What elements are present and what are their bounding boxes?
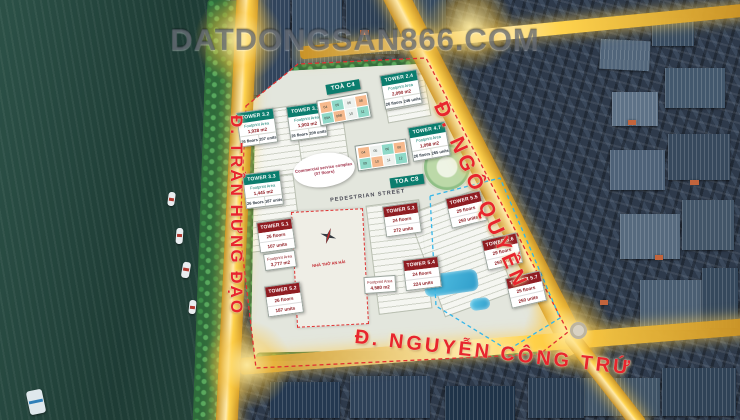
unit-cell: 10 xyxy=(345,107,358,119)
floors: 26 floors xyxy=(385,97,404,109)
roof xyxy=(655,255,663,260)
tower-card-3-3: TOWER 3.3 Footprint Area 1,445 m2 26 flo… xyxy=(242,170,284,209)
roundabout xyxy=(570,322,587,339)
units: 209 units xyxy=(308,126,328,137)
floors: 26 floors xyxy=(413,149,432,161)
building xyxy=(599,39,651,72)
aerial-masterplan-map: NHÀ THỜ AN HẢI PEDESTRIAN STREET TOWER 3… xyxy=(0,0,740,420)
building xyxy=(620,214,680,259)
building xyxy=(668,134,730,180)
swimming-pool xyxy=(469,297,490,312)
tower-card-5-1: TOWER 5.1 26 floors 107 units xyxy=(256,218,296,254)
units: 187 units xyxy=(263,195,282,206)
tower-card-2-4: TOWER 2.4 Footprint Area 2,090 m2 26 flo… xyxy=(379,69,423,110)
footprint-box-5-4: Footprint Area 4,580 m2 xyxy=(363,275,396,294)
unit-cell: 08 xyxy=(393,141,405,152)
unit-cell: 09A xyxy=(321,112,334,124)
building xyxy=(665,68,725,108)
unit-cell: 04 xyxy=(319,101,332,113)
units: 246 units xyxy=(402,94,422,106)
floors: 26 floors xyxy=(290,129,309,140)
building xyxy=(350,376,430,418)
watermark-text: DATDONGSAN866.COM xyxy=(140,22,570,58)
boat xyxy=(175,228,183,244)
floors: 26 floors xyxy=(246,197,264,208)
building xyxy=(445,386,515,420)
compass-rose-icon xyxy=(317,225,339,247)
building xyxy=(270,382,340,418)
unit-cell: 11 xyxy=(356,105,369,117)
unit-cell: 06 xyxy=(381,143,393,154)
roof xyxy=(690,180,699,185)
tower-card-5-2: TOWER 5.2 26 floors 187 units xyxy=(264,282,304,318)
roof xyxy=(628,120,636,125)
unit-cell: 05 xyxy=(369,145,381,156)
building xyxy=(662,368,736,416)
building xyxy=(610,150,665,190)
unit-cell: 06 xyxy=(343,97,356,109)
building xyxy=(682,200,734,250)
unit-cell: 04 xyxy=(357,146,369,157)
building xyxy=(528,378,584,418)
unit-cell: 12 xyxy=(394,152,406,163)
tower-card-5-4: TOWER 5.4 24 floors 224 units xyxy=(402,256,442,291)
church-label: NHÀ THỜ AN HẢI xyxy=(303,258,355,269)
unit-cell: 11 xyxy=(383,154,395,165)
unit-cell: 05 xyxy=(331,99,344,111)
unit-cell: 08 xyxy=(354,95,367,107)
street-label-tran-hung-dao: Đ. TRẦN HƯNG ĐẠO xyxy=(226,115,246,315)
unit-cell: 09B xyxy=(333,110,346,122)
tower-card-5-3: TOWER 5.3 24 floors 272 units xyxy=(382,202,422,238)
unit-cell: 10 xyxy=(371,156,383,167)
units: 207 units xyxy=(258,132,278,143)
unit-cell: 09 xyxy=(359,157,371,168)
roof xyxy=(600,300,608,305)
